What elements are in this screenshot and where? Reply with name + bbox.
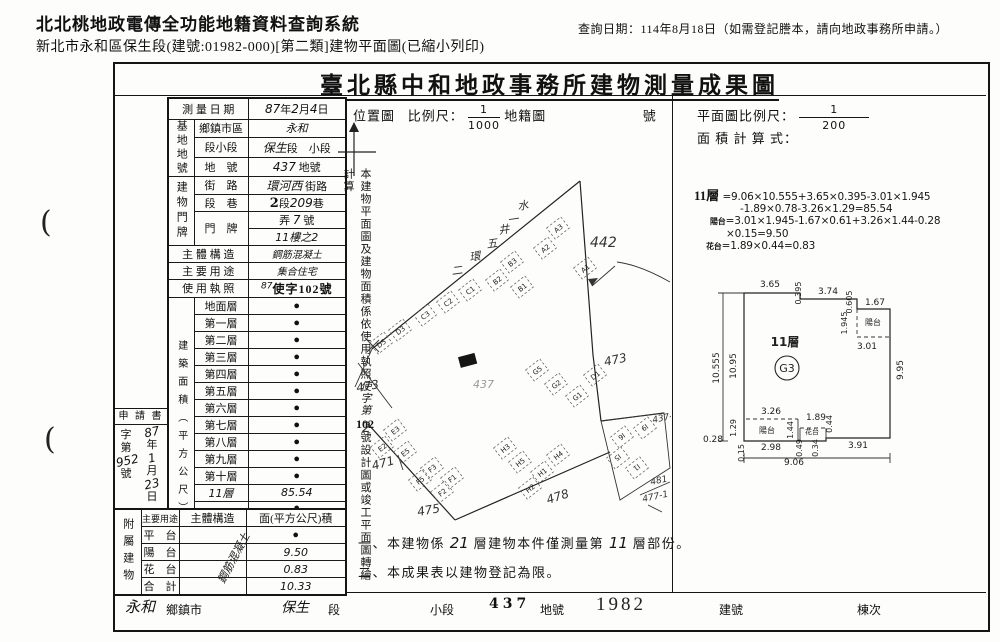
floor-area-value: ● — [248, 348, 346, 365]
annex-structure-header: 主體構造 — [179, 509, 246, 527]
floor-row: 第一層● — [168, 314, 346, 331]
floor-row: 11層85.54 — [168, 484, 346, 501]
unit-label: E2 — [377, 442, 389, 454]
lot-number: 437 — [473, 378, 494, 391]
floor-label: 第五層 — [194, 382, 248, 399]
annex-row-label: 合 計 — [141, 578, 179, 596]
floor-area-value: ● — [248, 331, 346, 348]
district-value: 永和 — [248, 119, 346, 138]
annex-building-table: 附屬建物 主要用途 主體構造 面(平方公尺)積 平 台 ● 陽 台 9.50 花… — [113, 508, 347, 596]
section-divider — [672, 95, 673, 592]
lot-number: 477-1 — [642, 490, 670, 505]
dimension-label: 3.91 — [848, 441, 868, 451]
lot-number: 473 — [603, 350, 628, 368]
unit-label: H4 — [552, 449, 565, 462]
bottom-strip-item: 437 — [489, 596, 530, 612]
floor-label: 第七層 — [194, 416, 248, 433]
lot-number: 2 — [362, 420, 371, 436]
dimension-label: 3.74 — [818, 287, 838, 297]
page: 北北桃地政電傳全功能地籍資料查詢系統 查詢日期：114年8月18日（如需登記謄本… — [0, 0, 1000, 642]
floor-row: 建築面積（平方公尺）地面層● — [168, 297, 346, 314]
annex-row-value: ● — [246, 527, 346, 544]
annex-row-label: 陽 台 — [141, 544, 179, 561]
dimension-label: 1.89 — [806, 413, 826, 423]
section-value: 保生段 小段 — [248, 138, 346, 158]
dimension-label: 0.28 — [703, 435, 723, 445]
unit-label: F1 — [447, 473, 459, 485]
floor-area-value: ● — [248, 365, 346, 382]
road-annotation-char: 水 — [517, 198, 531, 213]
bottom-strip-item: 永和 — [125, 596, 155, 617]
bottom-strip-item: 1982 — [596, 594, 646, 616]
application-number-column: 字第952號 — [116, 429, 136, 481]
district-label: 鄉鎮市區 — [194, 119, 248, 138]
bottom-strip-item: 棟次 — [857, 601, 881, 618]
floor-label: 第六層 — [194, 399, 248, 416]
dimension-label: 3.01 — [857, 342, 877, 352]
area-calc-label: 面 積 計 算 式： — [697, 128, 798, 147]
application-date-column: 87年1月23日 — [142, 426, 162, 504]
unit-id-label: G3 — [779, 362, 795, 375]
dimension-label: 0.34 — [811, 439, 820, 457]
annex-structure-cell — [179, 561, 246, 578]
query-date: 查詢日期：114年8月18日（如需登記謄本，請向地政事務所申請。） — [578, 20, 948, 37]
plan-scale-label: 平面圖比例尺： — [697, 108, 795, 123]
floor-plan-drawing: G3 11層 3.650.3953.740.6051.671.945陽台3.01… — [690, 256, 990, 508]
unit-label: E3 — [390, 425, 402, 437]
unit-label: I6 — [616, 431, 626, 442]
unit-label: C1 — [464, 285, 476, 297]
road-annotation-char: 環 — [469, 249, 484, 264]
floor-label: 地面層 — [194, 297, 248, 314]
door-label: 門 牌 — [194, 211, 248, 245]
bottom-strip-item: 段 — [328, 601, 340, 618]
annex-row-value: 9.50 — [246, 544, 346, 561]
section-label: 段小段 — [194, 138, 248, 158]
dimension-labels: 3.650.3953.740.6051.671.945陽台3.0110.5551… — [703, 280, 906, 468]
bottom-strip-item: 建號 — [719, 601, 743, 618]
application-box: 申 請 書 字第952號 87年1月23日 — [113, 408, 169, 510]
plan-scale-fraction: 1200 — [799, 103, 869, 132]
unit-label: F3 — [427, 463, 439, 475]
floor-row: 第四層● — [168, 365, 346, 382]
dimension-label: 1.44 — [786, 421, 795, 439]
unit-label: E5 — [400, 447, 412, 459]
unit-label: B2 — [492, 275, 504, 287]
dimension-label: 9.95 — [896, 360, 906, 380]
lot-number: 471 — [370, 453, 396, 472]
license-value: 87使字102號 — [248, 279, 346, 297]
unit-label: C2 — [442, 297, 454, 309]
bottom-strip-item: 保生 — [281, 597, 309, 617]
application-field: 日 — [142, 491, 162, 504]
dimension-label: 1.945 — [840, 312, 849, 335]
street-value: 環河西 街路 — [248, 176, 346, 194]
unit-label: H3 — [499, 443, 512, 455]
dimension-label: 0.15 — [737, 444, 746, 462]
annex-structure-cell — [179, 578, 246, 596]
floor-row: 第八層● — [168, 433, 346, 450]
system-title: 北北桃地政電傳全功能地籍資料查詢系統 — [36, 10, 360, 35]
unit-label: D5 — [375, 338, 388, 350]
unit-label: D3 — [394, 325, 407, 337]
lot-number: 478 — [545, 486, 571, 507]
address-group-label: 建物門牌 — [168, 176, 194, 245]
note-1: 一、本建物係 21 層建物本件僅測量第 11 層部份。 — [358, 533, 691, 552]
floor-area-value: ● — [248, 450, 346, 467]
floor-area-value: ● — [248, 382, 346, 399]
dimension-label: 10.555 — [712, 352, 722, 384]
lot-number: 481 — [650, 475, 669, 488]
door-value-2: 11樓之2 — [248, 228, 346, 245]
floor-row: 第七層● — [168, 416, 346, 433]
lot-number: 475 — [416, 501, 441, 519]
unit-label: H5 — [514, 457, 527, 469]
unit-label: A3 — [553, 223, 565, 235]
floor-label: 第四層 — [194, 365, 248, 382]
license-label: 使 用 執 照 — [168, 279, 248, 297]
lane-value: 2段209巷 — [248, 194, 346, 211]
floor-area-value: ● — [248, 399, 346, 416]
floor-area-value: ● — [248, 416, 346, 433]
dimension-label: 0.49 — [795, 439, 804, 457]
unit-label: B1 — [517, 282, 529, 294]
annex-row-value: 0.83 — [246, 561, 346, 578]
survey-date-label: 測 量 日 期 — [168, 98, 248, 119]
document-subtitle: 新北市永和區保生段(建號:01982-000)[第二類]建物平面圖(已縮小列印) — [36, 36, 485, 56]
use-label: 主 要 用 途 — [168, 262, 248, 279]
floor-row: 第二層● — [168, 331, 346, 348]
floor-area-value: 85.54 — [248, 484, 346, 501]
floor-row: 第五層● — [168, 382, 346, 399]
site-plan-map: A3A2A1B3B2B1C1C2C3D3D5E3E2E5F3F1F2F5G5G2… — [345, 100, 671, 530]
lane-label: 段 巷 — [194, 194, 248, 211]
dimension-label: 1.29 — [729, 419, 738, 437]
unit-label: G2 — [550, 379, 563, 391]
dimension-label: 3.65 — [760, 280, 780, 290]
structure-value: 鋼筋混凝土 — [248, 245, 346, 262]
unit-label: H1 — [536, 467, 549, 479]
floor-label: 第一層 — [194, 314, 248, 331]
lot-label: 地 號 — [194, 157, 248, 176]
note-2: 二、本成果表以建物登記為限。 — [358, 562, 561, 581]
unit-label: B3 — [507, 257, 519, 269]
floor-row: 第三層● — [168, 348, 346, 365]
floor-label: 第二層 — [194, 331, 248, 348]
dimension-label: 10.95 — [729, 353, 739, 379]
survey-date-value: 87年2月4日 — [248, 98, 346, 119]
annex-use-header: 主要用途 — [141, 509, 179, 527]
dimension-label: 2.98 — [761, 443, 781, 453]
subject-building-stamp — [458, 353, 477, 368]
dimension-label: 陽台 — [759, 425, 775, 435]
unit-label: D1 — [589, 370, 602, 382]
lot-value: 437 地號 — [248, 157, 346, 176]
floor-row: 第九層● — [168, 450, 346, 467]
annex-row-value: 10.33 — [246, 578, 346, 596]
dimension-label: 9.06 — [784, 458, 804, 468]
bottom-strip-item: 小段 — [430, 601, 454, 618]
application-field: 號 — [116, 468, 136, 481]
bottom-strip-item: 鄉鎮市 — [166, 601, 202, 618]
unit-label: G5 — [531, 365, 544, 377]
site-group-label: 基地地號 — [168, 119, 194, 176]
road-annotation-char: 五 — [486, 236, 500, 251]
dimension-label: 陽台 — [865, 317, 881, 327]
annex-row-label: 平 台 — [141, 527, 179, 544]
floor-label: 11層 — [771, 335, 800, 349]
door-value-1: 弄 7 號 — [248, 211, 346, 228]
application-title: 申 請 書 — [114, 409, 168, 425]
dimension-label: 0.44 — [825, 415, 834, 433]
dimension-label: 0.395 — [794, 282, 803, 305]
dimension-label: 1.67 — [865, 298, 885, 308]
application-field: 字 — [116, 429, 136, 442]
floor-area-value: ● — [248, 297, 346, 314]
structure-label: 主 體 構 造 — [168, 245, 248, 262]
lot-number: 473 — [355, 377, 380, 395]
floor-label: 第八層 — [194, 433, 248, 450]
street-label: 街 路 — [194, 176, 248, 194]
unit-label: I1 — [631, 462, 641, 472]
lot-number: 442 — [590, 235, 617, 251]
dimension-label: 花台 — [805, 427, 819, 436]
unit-label: F2 — [437, 487, 449, 499]
unit-label: C3 — [419, 310, 431, 322]
floor-area-value: ● — [248, 433, 346, 450]
floor-label: 第九層 — [194, 450, 248, 467]
floor-label: 第十層 — [194, 467, 248, 484]
punch-mark-top: ( — [40, 205, 52, 240]
unit-label: I5 — [612, 452, 622, 462]
punch-mark-bottom: ( — [44, 422, 56, 457]
annex-structure-cell — [179, 527, 246, 544]
annex-group-label: 附屬建物 — [114, 509, 141, 595]
unit-label: I9 — [639, 422, 649, 432]
annex-structure-cell — [179, 544, 246, 561]
use-value: 集合住宅 — [248, 262, 346, 279]
annex-row-label: 花 台 — [141, 561, 179, 578]
floor-area-value: ● — [248, 314, 346, 331]
title-rule — [113, 95, 986, 96]
floor-row: 第十層● — [168, 467, 346, 484]
unit-label: A1 — [580, 263, 592, 275]
unit-label: G1 — [571, 391, 584, 403]
area-calculation-formula: 11層 =9.06×10.555+3.65×0.395-3.01×1.945 -… — [694, 190, 986, 253]
annex-area-header: 面(平方公尺)積 — [246, 509, 346, 527]
bottom-strip-item: 地號 — [540, 601, 564, 618]
dimension-label: 0.605 — [845, 291, 854, 314]
dimension-label: 3.26 — [761, 407, 781, 417]
road-annotation-char: 二 — [451, 263, 465, 278]
floor-label: 第三層 — [194, 348, 248, 365]
floor-row: 第六層● — [168, 399, 346, 416]
floor-label: 11層 — [194, 484, 248, 501]
floor-area-value: ● — [248, 467, 346, 484]
lot-number-labels: 4424732471475478473437-1481477-1437 — [355, 235, 671, 519]
unit-label: A2 — [540, 243, 552, 255]
